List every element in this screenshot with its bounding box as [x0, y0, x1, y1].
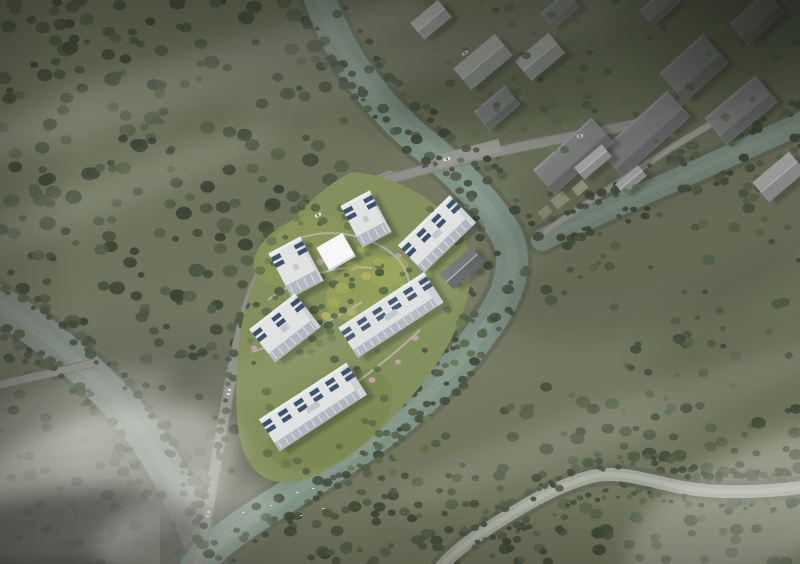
aerial-masterplan-rendering [0, 0, 800, 564]
rendering-canvas [0, 0, 800, 564]
vignette-layer [0, 0, 800, 564]
